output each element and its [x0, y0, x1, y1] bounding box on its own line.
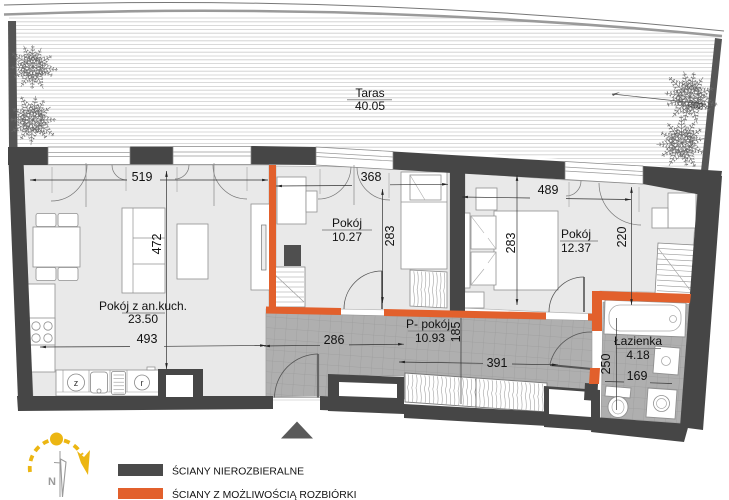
- svg-text:Taras: Taras: [355, 86, 384, 100]
- svg-text:286: 286: [324, 333, 345, 347]
- svg-text:Pokój z an.kuch.: Pokój z an.kuch.: [99, 299, 187, 313]
- svg-text:489: 489: [538, 183, 559, 197]
- svg-text:519: 519: [132, 170, 153, 184]
- svg-text:283: 283: [383, 226, 397, 247]
- svg-text:Pokój: Pokój: [332, 216, 362, 230]
- svg-text:r: r: [141, 378, 144, 388]
- svg-text:ŚCIANY NIEROZBIERALNE: ŚCIANY NIEROZBIERALNE: [172, 465, 304, 478]
- svg-text:169: 169: [627, 369, 648, 383]
- svg-text:Pokój: Pokój: [561, 227, 591, 241]
- svg-text:12.37: 12.37: [561, 241, 591, 255]
- svg-text:493: 493: [137, 332, 158, 346]
- svg-text:ŚCIANY Z MOŻLIWOŚCIĄ ROZBIÓRKI: ŚCIANY Z MOŻLIWOŚCIĄ ROZBIÓRKI: [172, 488, 357, 500]
- svg-text:220: 220: [615, 227, 629, 248]
- svg-text:z: z: [74, 378, 79, 388]
- svg-text:368: 368: [361, 170, 382, 184]
- svg-text:283: 283: [504, 233, 518, 254]
- svg-text:250: 250: [599, 354, 613, 375]
- svg-text:23.50: 23.50: [128, 312, 158, 326]
- svg-text:40.05: 40.05: [355, 99, 385, 113]
- svg-text:4.18: 4.18: [626, 348, 650, 362]
- svg-text:P- pokój: P- pokój: [406, 317, 450, 331]
- svg-text:Łazienka: Łazienka: [614, 334, 662, 348]
- svg-text:472: 472: [150, 234, 164, 255]
- svg-text:N: N: [48, 476, 56, 488]
- svg-text:10.93: 10.93: [415, 331, 445, 345]
- svg-text:391: 391: [487, 356, 508, 370]
- svg-text:10.27: 10.27: [332, 230, 362, 244]
